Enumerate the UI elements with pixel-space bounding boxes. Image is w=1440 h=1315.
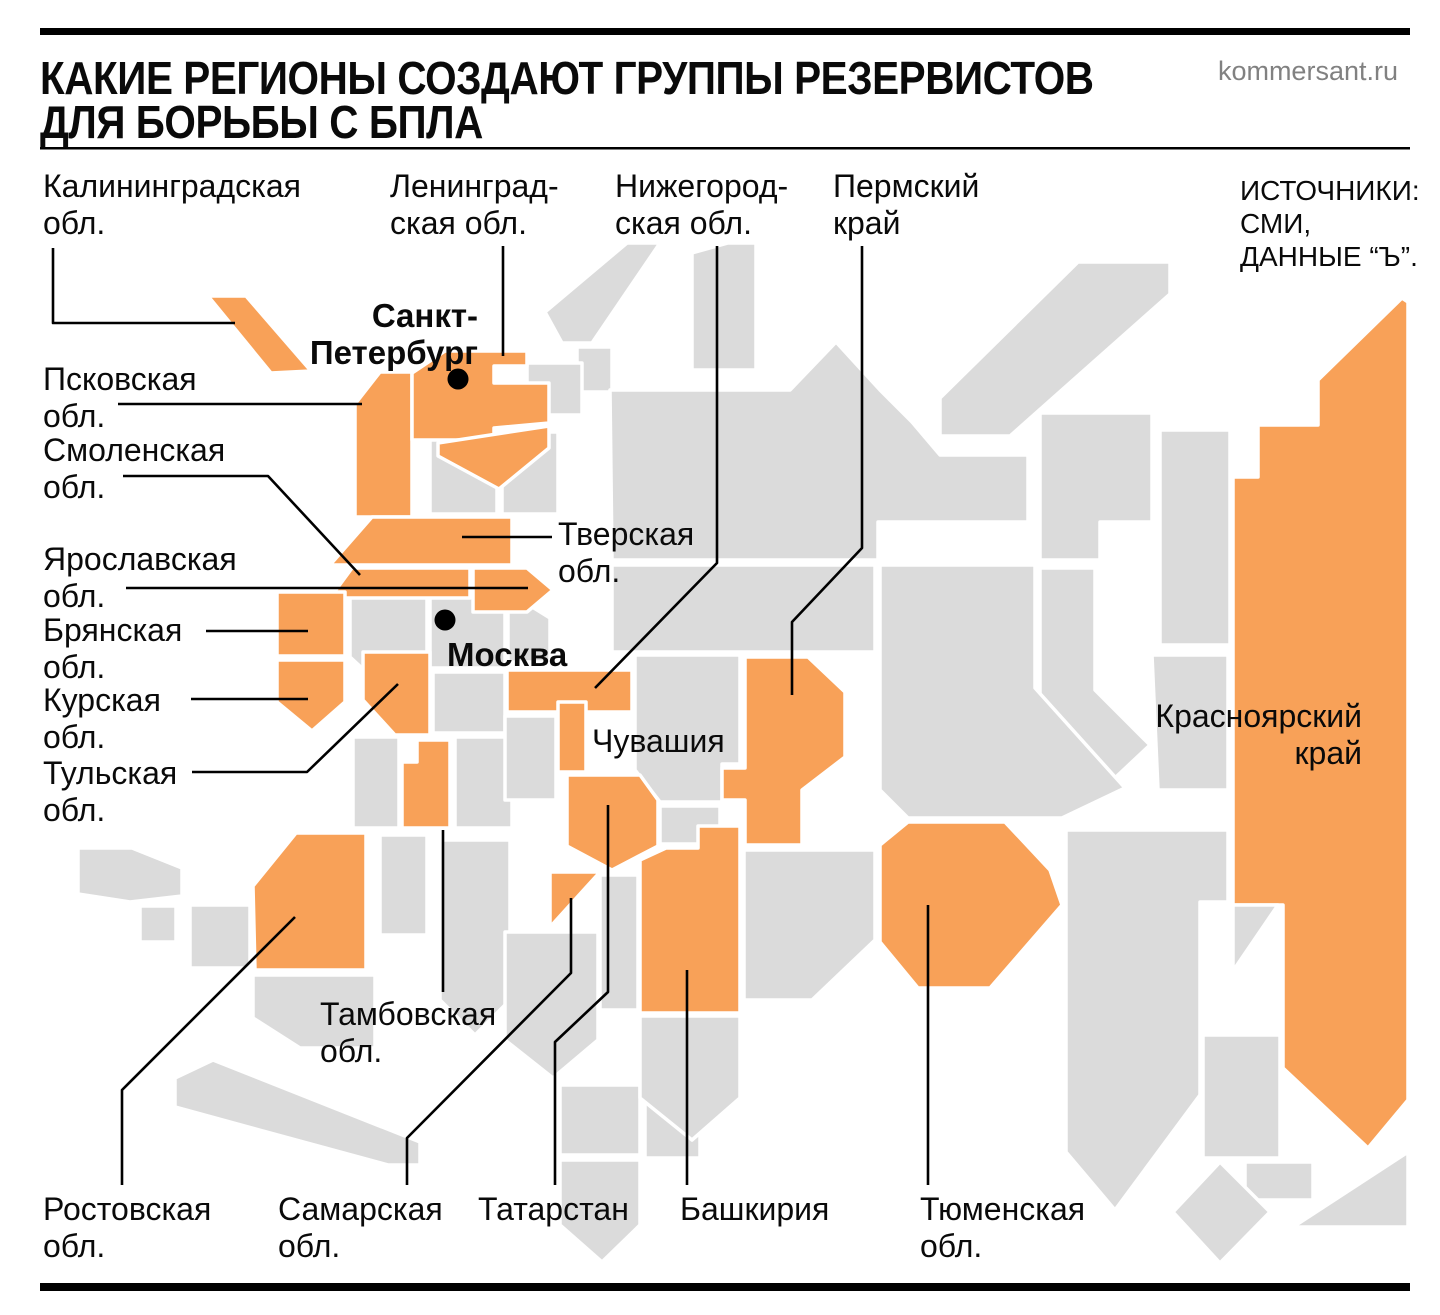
label-text: Псковская — [43, 361, 197, 397]
label-text: обл. — [43, 398, 105, 434]
base-regions — [78, 243, 1408, 1263]
region-bryansk — [277, 592, 345, 656]
label-moscow: Москва — [447, 636, 568, 673]
label-text: край — [833, 205, 900, 241]
region-kaliningrad — [208, 296, 311, 373]
top-rule — [40, 28, 1410, 35]
label-text: Чувашия — [592, 723, 725, 759]
page-title-line2: ДЛЯ БОРЬБЫ С БПЛА — [40, 98, 483, 149]
sources-note: ИСТОЧНИКИ: СМИ, ДАННЫЕ “Ъ”. — [1240, 175, 1420, 272]
city-dot-spb — [448, 369, 469, 390]
label-text: Самарская — [278, 1191, 443, 1227]
map-region — [1245, 1162, 1313, 1200]
map-region — [175, 1060, 420, 1165]
map-region — [1040, 413, 1152, 560]
region-kursk — [277, 660, 345, 731]
label-leningrad: Ленинград- ская обл. — [390, 168, 559, 241]
label-text: Татарстан — [478, 1191, 629, 1227]
label-yaroslavl: Ярославская обл. — [43, 541, 237, 614]
label-text: обл. — [320, 1033, 382, 1069]
map-region — [600, 875, 638, 1010]
label-spb-line2: Петербург — [310, 334, 478, 371]
region-samara — [550, 872, 600, 927]
label-text: обл. — [558, 553, 620, 589]
map-region — [1203, 1035, 1280, 1158]
label-pskov: Псковская обл. — [43, 361, 197, 434]
label-text: обл. — [43, 1228, 105, 1264]
map-region — [545, 243, 660, 343]
label-text: обл. — [43, 792, 105, 828]
label-text: Красноярский — [1155, 698, 1362, 734]
region-tver — [330, 517, 512, 565]
region-tyumen — [880, 822, 1062, 988]
map-region — [380, 835, 427, 935]
label-perm: Пермский край — [833, 168, 979, 241]
label-spb-line1: Санкт- — [372, 297, 478, 334]
sources-line3: ДАННЫЕ “Ъ”. — [1240, 241, 1418, 272]
label-text: обл. — [43, 719, 105, 755]
map-region — [612, 565, 875, 652]
map-region — [1160, 430, 1230, 645]
label-text: Смоленская — [43, 432, 225, 468]
region-rostov — [253, 833, 366, 970]
region-yaroslavl — [473, 568, 553, 612]
label-samara: Самарская обл. — [278, 1191, 443, 1264]
label-text: Башкирия — [680, 1191, 829, 1227]
map-region — [744, 850, 875, 1000]
label-rostov: Ростовская обл. — [43, 1191, 211, 1264]
label-tambov: Тамбовская обл. — [320, 996, 496, 1069]
label-tyumen: Тюменская обл. — [920, 1191, 1085, 1264]
sources-line2: СМИ, — [1240, 208, 1311, 239]
label-text: обл. — [43, 578, 105, 614]
city-dot-moscow — [435, 610, 456, 631]
map-region — [190, 905, 250, 968]
label-text: Калининградская — [43, 168, 301, 204]
label-bashkiria: Башкирия — [680, 1191, 829, 1227]
label-text: Пермский — [833, 168, 979, 204]
label-text: Ярославская — [43, 541, 237, 577]
label-text: обл. — [278, 1228, 340, 1264]
map-region — [78, 848, 182, 902]
label-text: Ростовская — [43, 1191, 211, 1227]
label-text: Брянская — [43, 612, 182, 648]
label-smolensk: Смоленская обл. — [43, 432, 225, 505]
label-nizhny: Нижегород- ская обл. — [615, 168, 788, 241]
label-text: обл. — [43, 469, 105, 505]
label-chuvashia: Чувашия — [592, 723, 725, 759]
label-text: обл. — [920, 1228, 982, 1264]
label-text: Тверская — [558, 516, 694, 552]
map-region — [433, 672, 505, 733]
map-region — [505, 716, 556, 800]
label-text: Курская — [43, 682, 161, 718]
label-text: ская обл. — [390, 205, 527, 241]
label-kaliningrad: Калининградская обл. — [43, 168, 301, 241]
leader-kaliningrad — [53, 248, 235, 323]
region-tambov — [402, 740, 450, 828]
site-logo: kommersant.ru — [1218, 56, 1398, 86]
region-bashkiria — [640, 826, 740, 1013]
map-region — [940, 262, 1170, 436]
bottom-rule — [40, 1283, 1410, 1291]
map-region — [505, 932, 598, 1078]
label-text: Тюменская — [920, 1191, 1085, 1227]
region-chuvashia — [558, 702, 586, 772]
map-region — [560, 1085, 640, 1155]
region-smolensk — [330, 568, 470, 598]
label-tatarstan: Татарстан — [478, 1191, 629, 1227]
label-text: Ленинград- — [390, 168, 559, 204]
label-text: Тульская — [43, 755, 177, 791]
infographic: КАКИЕ РЕГИОНЫ СОЗДАЮТ ГРУППЫ РЕЗЕРВИСТОВ… — [0, 0, 1440, 1315]
region-tula — [363, 652, 430, 735]
label-text: ская обл. — [615, 205, 752, 241]
label-kursk: Курская обл. — [43, 682, 161, 755]
label-text: Тамбовская — [320, 996, 496, 1032]
region-tatarstan — [567, 775, 658, 870]
map-region — [1233, 905, 1278, 971]
map-canvas: КАКИЕ РЕГИОНЫ СОЗДАЮТ ГРУППЫ РЕЗЕРВИСТОВ… — [0, 0, 1440, 1315]
label-text: край — [1295, 735, 1362, 771]
label-text: Нижегород- — [615, 168, 788, 204]
map-region — [353, 737, 399, 828]
sources-line1: ИСТОЧНИКИ: — [1240, 175, 1420, 206]
map-region — [692, 243, 756, 370]
label-bryansk: Брянская обл. — [43, 612, 182, 685]
region-pskov — [355, 372, 412, 517]
label-text: обл. — [43, 649, 105, 685]
label-text: обл. — [43, 205, 105, 241]
label-tula: Тульская обл. — [43, 755, 177, 828]
map-region — [140, 906, 176, 942]
